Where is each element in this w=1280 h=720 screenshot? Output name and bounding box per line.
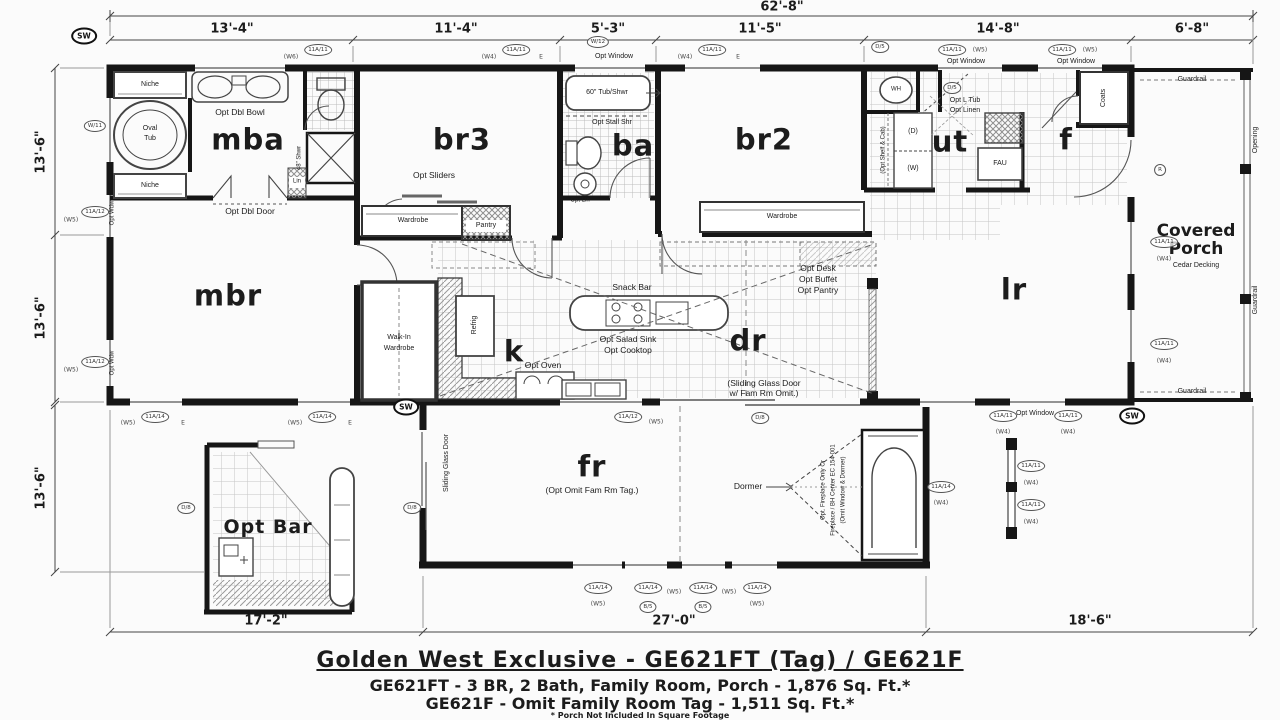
wardrobe-br2-label: Wardrobe (767, 213, 797, 221)
annotation-bubble: B/5 (639, 601, 656, 613)
opt-window-label-3: Opt Window (1057, 58, 1095, 66)
wardrobe-br3-label: Wardrobe (398, 217, 428, 225)
annotation-bubble: 11A/14 (927, 481, 955, 493)
annotation-bubble: 11A/14 (584, 582, 612, 594)
opt-stall-shr-label: Opt Stall Shr (592, 119, 632, 127)
opt-wdw-label-1: Opt Wdw (110, 201, 117, 226)
fr-note-label: (Opt Omit Fam Rm Tag.) (546, 486, 639, 496)
annotation-bubble: 11A/11 (1150, 236, 1178, 248)
dim-top-4: 11'-5" (738, 23, 781, 38)
window-tag-label: (W4) (1061, 429, 1075, 436)
dim-top-6: 6'-8" (1175, 23, 1209, 38)
oval-tub-label-1: Oval (143, 125, 157, 133)
annotation-bubble: 11A/14 (308, 411, 336, 423)
room-label-br2: br2 (735, 123, 793, 156)
annotation-bubble: 11A/11 (1048, 44, 1076, 56)
annotation-bubble: 11A/11 (502, 44, 530, 56)
room-label-f: f (1059, 123, 1073, 156)
room-label-ba: ba (612, 129, 654, 162)
tub60-label: 60" Tub/Shwr (586, 89, 628, 97)
window-tag-label: E (348, 420, 352, 427)
opt-window-label-2: Opt Window (947, 58, 985, 66)
room-label-fr: fr (578, 450, 607, 483)
opt-lin-label: Opt Lin (570, 198, 589, 205)
window-tag-label: (W5) (1083, 47, 1097, 54)
dim-left-2: 13'-6" (35, 296, 50, 339)
shower-48-label: 48" Shwr (297, 146, 304, 170)
annotation-bubble: 11A/11 (1054, 410, 1082, 422)
window-tag-label: (W4) (1024, 480, 1038, 487)
room-label-lr: lr (1001, 273, 1027, 306)
window-tag-label: (W5) (667, 589, 681, 596)
walkin-label-2: Wardrobe (384, 345, 414, 353)
annotation-bubble: 11A/12 (81, 356, 109, 368)
window-tag-label: E (539, 54, 543, 61)
dim-bottom-3: 18'-6" (1068, 615, 1111, 630)
window-tag-label: (W5) (973, 47, 987, 54)
opt-dbl-bowl-label: Opt Dbl Bowl (215, 108, 265, 118)
guardrail-top-label: Guardrail (1178, 76, 1207, 84)
annotation-bubble: 11A/12 (614, 411, 642, 423)
window-tag-label: (W4) (482, 54, 496, 61)
window-tag-label: (W4) (1024, 519, 1038, 526)
annotation-bubble: SW (393, 399, 419, 416)
annotation-bubble: SW (1119, 408, 1145, 425)
annotation-bubble: R (1154, 164, 1166, 176)
coats-label: Coats (1100, 89, 1108, 107)
room-label-ut: ut (932, 125, 969, 158)
dormer-label: Dormer (734, 482, 762, 492)
window-tag-label: (W5) (121, 420, 135, 427)
plan-spec-line-1: GE621FT - 3 BR, 2 Bath, Family Room, Por… (0, 676, 1280, 695)
lin-label: Lin (293, 179, 301, 186)
annotation-bubble: 11A/14 (689, 582, 717, 594)
fireplace-note-1: Opt. Fireplace Only Or (821, 460, 828, 520)
opening-label: Opening (1252, 127, 1260, 153)
opt-wdw-label-2: Opt Wdw (110, 351, 117, 376)
annotation-bubble: D/5 (871, 41, 889, 53)
annotation-bubble: 11A/11 (698, 44, 726, 56)
window-tag-label: (W5) (649, 419, 663, 426)
window-tag-label: (W5) (750, 601, 764, 608)
dim-top-1: 13'-4" (210, 23, 253, 38)
window-tag-label: (W5) (722, 589, 736, 596)
walkin-label-1: Walk-In (387, 334, 410, 342)
room-label-dr: dr (729, 324, 766, 357)
dim-bottom-1: 17'-2" (244, 615, 287, 630)
annotation-bubble: 11A/11 (1017, 499, 1045, 511)
dim-bottom-2: 27'-0" (652, 615, 695, 630)
annotation-bubble: B/5 (694, 601, 711, 613)
dim-overall-width: 62'-8" (760, 1, 803, 16)
family-room (680, 406, 924, 562)
dryer-label: (D) (908, 128, 918, 136)
opt-cooktop-label: Opt Cooktop (604, 346, 652, 356)
window-tag-label: (W5) (591, 601, 605, 608)
opt-shelf-cab-label: (Opt Shelf & Cab) (881, 126, 888, 173)
opt-sliders-label: Opt Sliders (413, 171, 455, 181)
annotation-bubble: 11A/11 (989, 410, 1017, 422)
annotation-bubble: 11A/12 (81, 206, 109, 218)
window-tag-label: (W5) (288, 420, 302, 427)
window-tag-label: (W4) (1157, 256, 1171, 263)
floor-plan-drawing (0, 0, 1280, 720)
opt-buffet-label: Opt Buffet (799, 275, 837, 285)
opt-pantry-label: Opt Pantry (798, 286, 839, 296)
opt-l-tub-label: Opt L Tub (950, 97, 980, 105)
annotation-bubble: 11A/11 (1150, 338, 1178, 350)
cedar-decking-label: Cedar Decking (1173, 262, 1219, 270)
annotation-bubble: D/8 (751, 412, 769, 424)
room-label-br3: br3 (433, 123, 491, 156)
guardrail-right-label: Guardrail (1252, 286, 1260, 315)
fau-label: FAU (993, 160, 1007, 168)
window-tag-label: (W4) (678, 54, 692, 61)
window-tag-label: E (181, 420, 185, 427)
oval-tub-label-2: Tub (144, 135, 156, 143)
guardrail-bottom-label: Guardrail (1178, 388, 1207, 396)
wh-label: WH (891, 87, 901, 94)
annotation-bubble: 11A/11 (938, 44, 966, 56)
room-label-k: k (504, 335, 524, 368)
opt-window-label-4: Opt Window (1016, 410, 1054, 418)
window-tag-label: (W5) (64, 367, 78, 374)
refrig-label: Refrig (471, 316, 479, 335)
dim-top-2: 11'-4" (434, 23, 477, 38)
room-label-opt-bar: Opt Bar (223, 517, 312, 539)
sliding-door-note-2: w/ Fam Rm Omit.) (730, 389, 799, 399)
window-tag-label: (W5) (64, 217, 78, 224)
room-label-mba: mba (211, 123, 285, 156)
dim-left-3: 13'-6" (35, 466, 50, 509)
room-label-mbr: mbr (194, 279, 262, 312)
opt-salad-sink-label: Opt Salad Sink (600, 335, 657, 345)
opt-dbl-door-label: Opt Dbl Door (225, 207, 275, 217)
window-tag-label: (W6) (284, 54, 298, 61)
annotation-bubble: 11A/11 (304, 44, 332, 56)
sliding-glass-door-label: Sliding Glass Door (443, 434, 451, 492)
annotation-bubble: D/8 (177, 502, 195, 514)
window-tag-label: (W4) (996, 429, 1010, 436)
niche-top-label: Niche (141, 81, 159, 89)
annotation-bubble: D/5 (943, 82, 961, 94)
plan-title: Golden West Exclusive - GE621FT (Tag) / … (0, 648, 1280, 673)
opt-window-bar (1006, 438, 1017, 539)
fireplace-note-2: Fireplace / BH Center EC 154-001 (831, 444, 838, 535)
annotation-bubble: 11A/14 (743, 582, 771, 594)
annotation-bubble: 11A/14 (634, 582, 662, 594)
annotation-bubble: D/8 (403, 502, 421, 514)
snack-bar-label: Snack Bar (612, 283, 651, 293)
pantry-label: Pantry (476, 222, 496, 230)
dim-top-5: 14'-8" (976, 23, 1019, 38)
window-tag-label: E (736, 54, 740, 61)
niche-bottom-label: Niche (141, 182, 159, 190)
opt-desk-label: Opt Desk (800, 264, 835, 274)
plan-footnote: * Porch Not Included In Square Footage (0, 711, 1280, 720)
opt-window-label-1: Opt Window (595, 53, 633, 61)
annotation-bubble: SW (71, 28, 97, 45)
dim-left-1: 13'-6" (35, 130, 50, 173)
opt-linen-label: Opt Linen (950, 107, 980, 115)
floor-plan-page: 62'-8" 13'-4" 11'-4" 5'-3" 11'-5" 14'-8"… (0, 0, 1280, 720)
annotation-bubble: 11A/14 (141, 411, 169, 423)
annotation-bubble: 11A/11 (1017, 460, 1045, 472)
fireplace-note-3: (Omit Window & Dormer) (841, 456, 848, 523)
window-tag-label: (W4) (934, 500, 948, 507)
window-tag-label: (W4) (1157, 358, 1171, 365)
washer-label: (W) (907, 165, 918, 173)
opt-oven-label: Opt Oven (525, 361, 561, 371)
